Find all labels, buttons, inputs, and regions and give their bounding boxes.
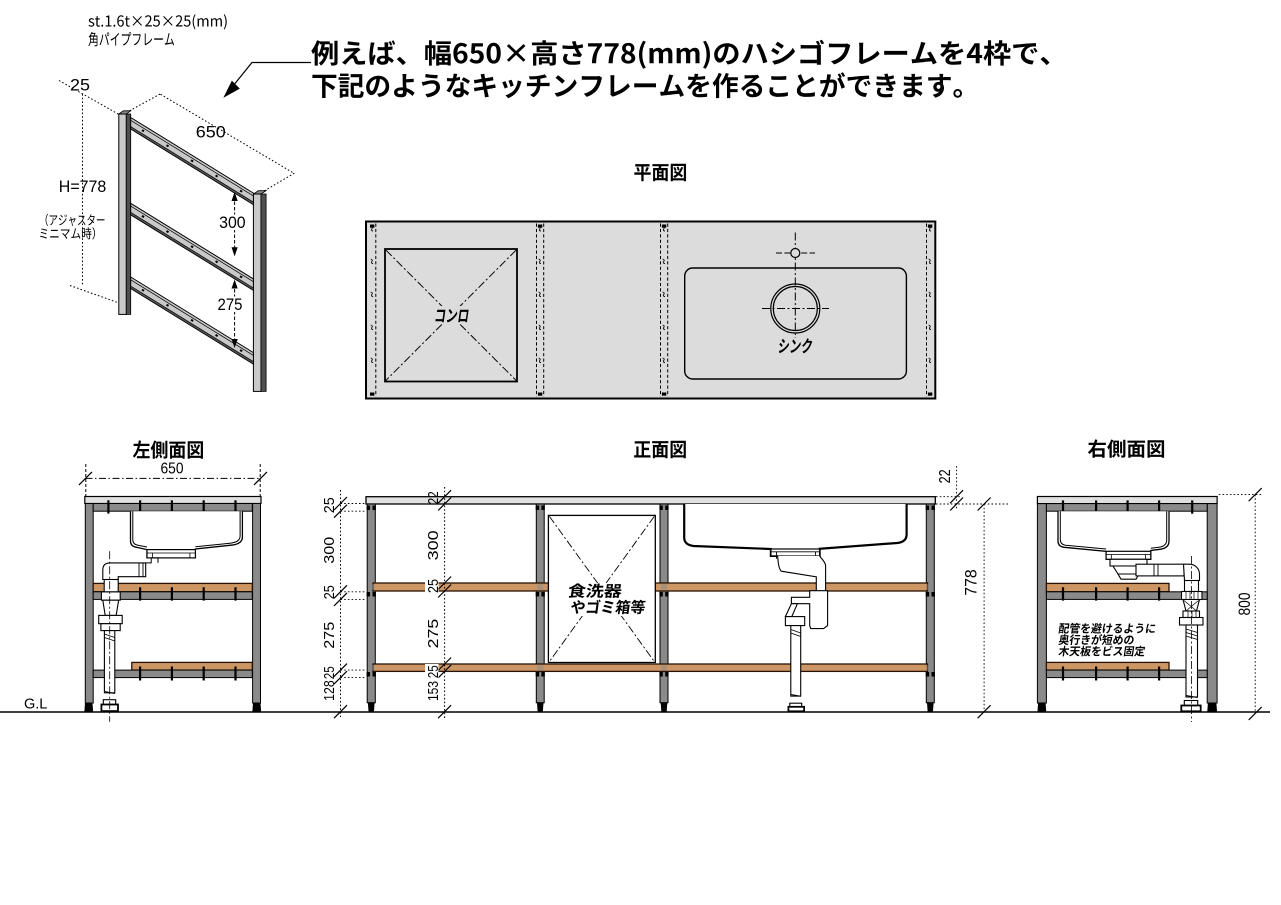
- svg-text:153: 153: [425, 681, 442, 701]
- svg-text:650: 650: [196, 123, 226, 142]
- svg-text:300: 300: [425, 530, 442, 560]
- svg-text:G.L: G.L: [24, 697, 47, 713]
- svg-text:300: 300: [321, 537, 338, 564]
- svg-text:650: 650: [161, 461, 184, 478]
- svg-text:22: 22: [937, 469, 954, 483]
- svg-text:25: 25: [321, 497, 338, 513]
- svg-text:300: 300: [219, 213, 246, 232]
- svg-text:22: 22: [425, 491, 442, 504]
- svg-text:25: 25: [321, 666, 338, 679]
- svg-text:275: 275: [425, 619, 442, 649]
- svg-text:275: 275: [321, 622, 338, 649]
- svg-text:25: 25: [425, 665, 442, 678]
- svg-text:800: 800: [1235, 593, 1254, 616]
- svg-text:25: 25: [425, 579, 442, 593]
- svg-text:H=778: H=778: [59, 177, 107, 196]
- svg-text:128: 128: [321, 680, 338, 701]
- svg-text:275: 275: [218, 295, 243, 314]
- svg-text:25: 25: [321, 585, 338, 599]
- svg-text:778: 778: [961, 569, 980, 596]
- svg-text:25: 25: [70, 76, 90, 95]
